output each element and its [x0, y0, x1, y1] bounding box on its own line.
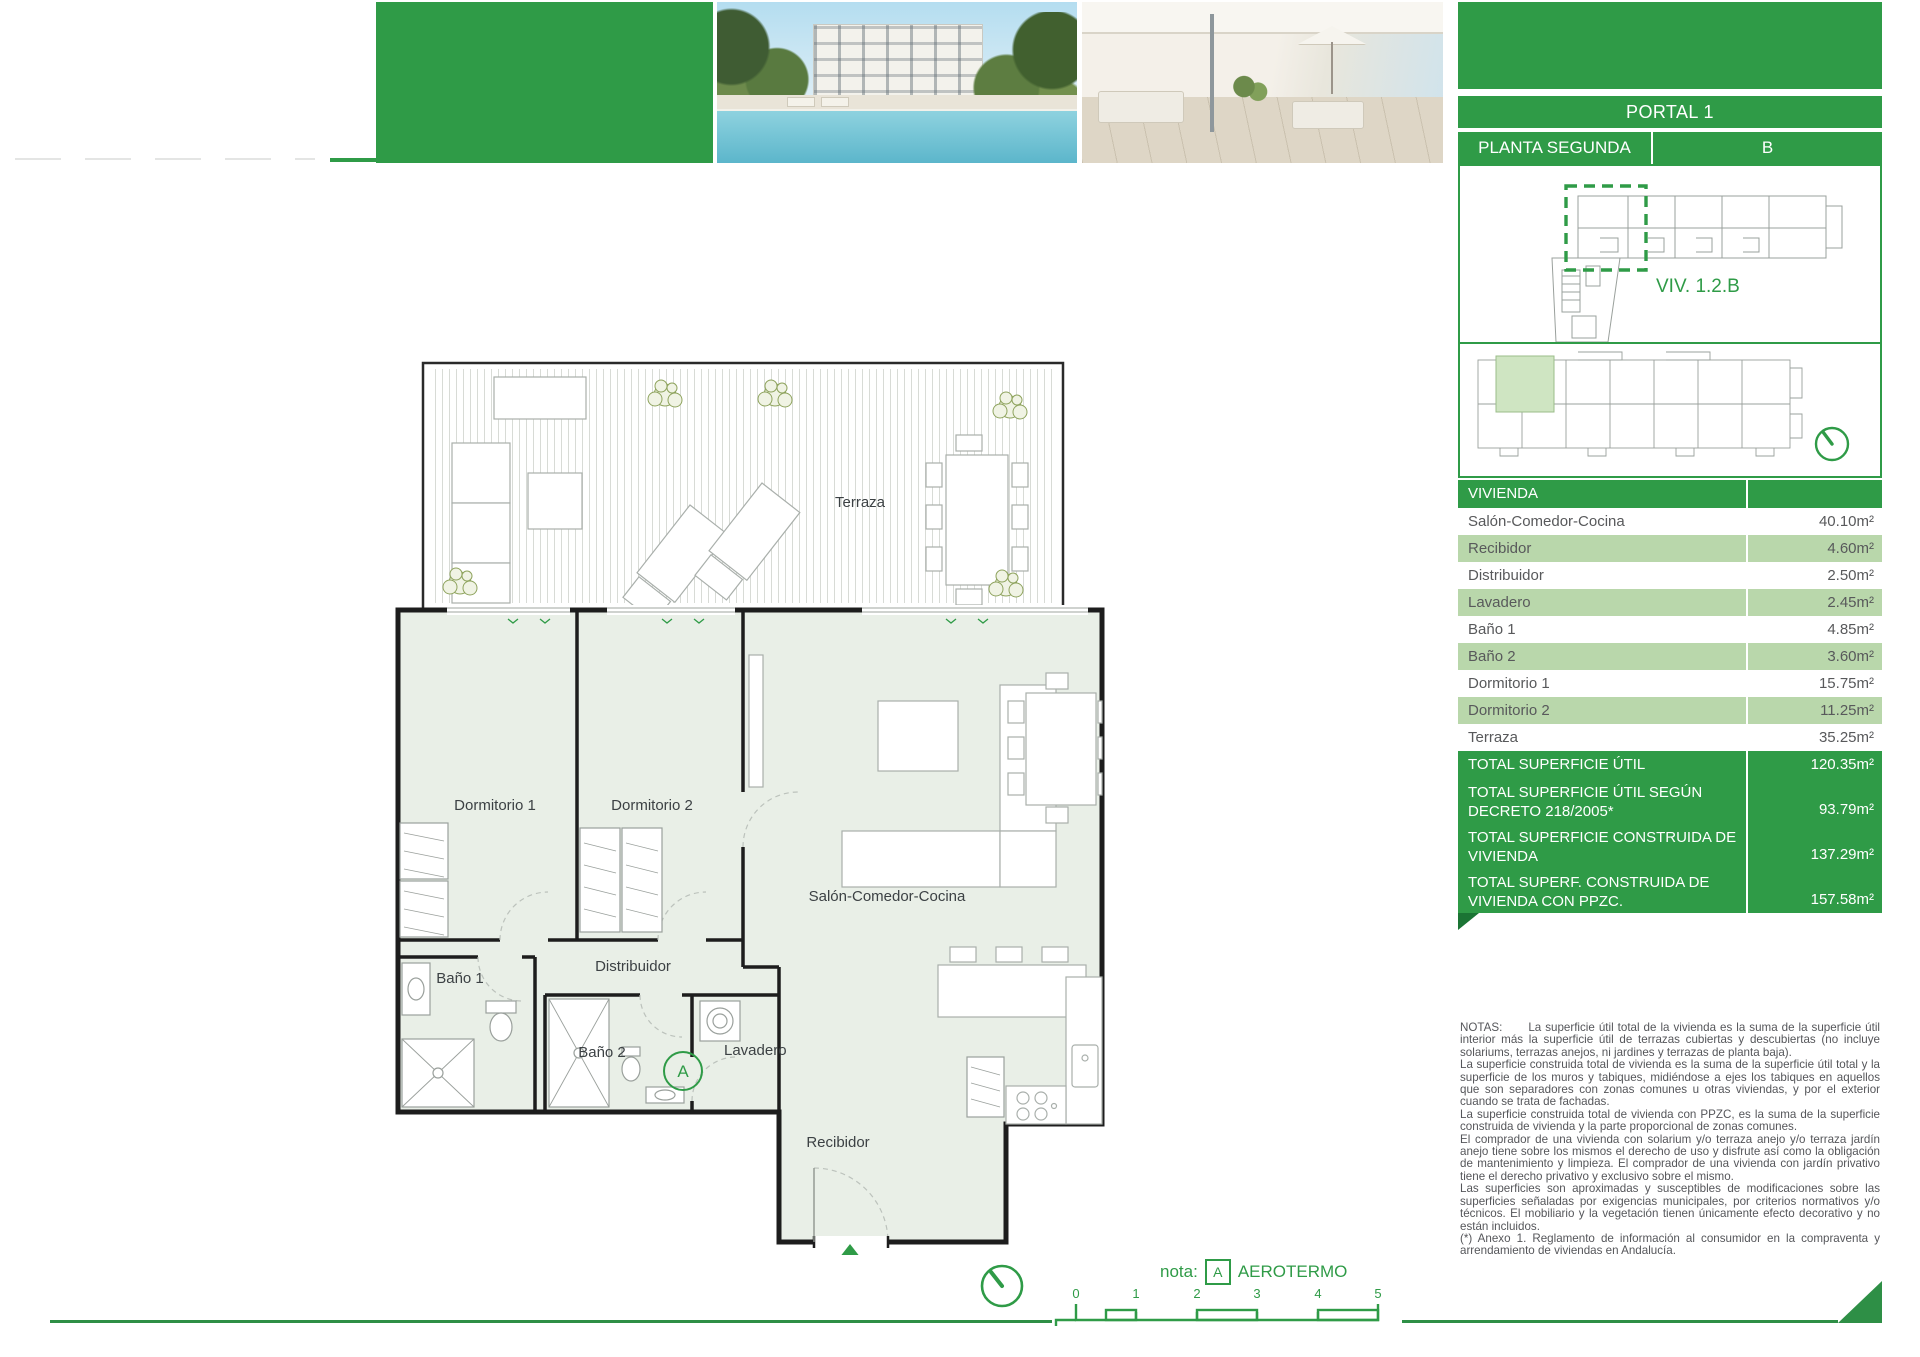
scale-bar: 0 1 2 3 4 5 [1048, 1282, 1388, 1328]
photo-lounger [821, 97, 849, 107]
photo-plant [1232, 73, 1272, 107]
photo-sofa [1098, 91, 1184, 123]
floor-strip-drawing [1460, 344, 1880, 476]
room-area: 3.60m² [1748, 643, 1882, 670]
pool-building-photo [717, 2, 1077, 163]
table-row: Recibidor4.60m² [1458, 535, 1882, 562]
floor-name: PLANTA SEGUNDA [1458, 132, 1651, 164]
surface-table: VIVIENDA Salón-Comedor-Cocina40.10m² Rec… [1458, 480, 1882, 913]
total-label: TOTAL SUPERF. CONSTRUIDA DE VIVIENDA CON… [1458, 868, 1746, 913]
room-name: Salón-Comedor-Cocina [1458, 508, 1746, 535]
svg-text:A: A [677, 1062, 689, 1081]
room-name: Distribuidor [1458, 562, 1746, 589]
photo-sofa [1292, 101, 1364, 129]
notes-block: NOTAS:La superficie útil total de la viv… [1460, 1022, 1880, 1258]
note-paragraph: (*) Anexo 1. Reglamento de información a… [1460, 1233, 1880, 1258]
room-area: 15.75m² [1748, 670, 1882, 697]
floor-plan-drawing: Terraza [390, 355, 1150, 1255]
room-area: 35.25m² [1748, 724, 1882, 751]
room-area: 4.60m² [1748, 535, 1882, 562]
table-row: Distribuidor2.50m² [1458, 562, 1882, 589]
highlighted-unit [1496, 356, 1554, 412]
plan-sheet: PORTAL 1 PLANTA SEGUNDA B [0, 0, 1920, 1357]
room-area: 40.10m² [1748, 508, 1882, 535]
total-label: TOTAL SUPERFICIE ÚTIL SEGÚN DECRETO 218/… [1458, 778, 1746, 823]
room-area: 11.25m² [1748, 697, 1882, 724]
aerotermo-note: nota: A AEROTERMO [1160, 1259, 1347, 1285]
note-paragraph: La superficie construida total de vivien… [1460, 1109, 1880, 1134]
table-row: Terraza35.25m² [1458, 724, 1882, 751]
table-row: Lavadero2.45m² [1458, 589, 1882, 616]
brand-color-block [376, 2, 713, 163]
floor-unit-row: PLANTA SEGUNDA B [1458, 132, 1882, 164]
scale-tick: 1 [1132, 1286, 1139, 1301]
table-header-row: VIVIENDA [1458, 480, 1882, 508]
aerotermo-box-icon: A [1205, 1259, 1231, 1285]
room-name: Baño 2 [1458, 643, 1746, 670]
total-value: 137.29m² [1748, 823, 1882, 868]
total-value: 93.79m² [1748, 778, 1882, 823]
table-row: Dormitorio 211.25m² [1458, 697, 1882, 724]
aerotermo-text: AEROTERMO [1238, 1262, 1348, 1282]
floor-strip-box [1458, 342, 1882, 478]
table-row: Salón-Comedor-Cocina40.10m² [1458, 508, 1882, 535]
portal-title: PORTAL 1 [1458, 96, 1882, 128]
total-row: TOTAL SUPERFICIE ÚTIL120.35m² [1458, 751, 1882, 778]
room-label-salon: Salón-Comedor-Cocina [809, 888, 966, 905]
faint-divider-line [15, 158, 315, 160]
terrace-area: Terraza [423, 363, 1063, 624]
room-label-terraza: Terraza [835, 494, 886, 511]
room-area: 4.85m² [1748, 616, 1882, 643]
room-name: Lavadero [1458, 589, 1746, 616]
nota-label: nota: [1160, 1262, 1198, 1282]
room-label-dormitorio2: Dormitorio 2 [611, 797, 693, 814]
green-accent-line [330, 158, 376, 162]
photo-lounger [787, 97, 815, 107]
total-row: TOTAL SUPERFICIE ÚTIL SEGÚN DECRETO 218/… [1458, 778, 1882, 823]
room-label-recibidor: Recibidor [806, 1134, 869, 1151]
room-area: 2.45m² [1748, 589, 1882, 616]
room-name: Recibidor [1458, 535, 1746, 562]
table-fold-corner [1458, 913, 1479, 930]
photo-pool [717, 109, 1077, 163]
footer-rule-left [50, 1320, 1052, 1323]
note-paragraph: La superficie construida total de vivien… [1460, 1059, 1880, 1109]
table-row: Dormitorio 115.75m² [1458, 670, 1882, 697]
scale-tick: 3 [1253, 1286, 1260, 1301]
total-label: TOTAL SUPERFICIE CONSTRUIDA DE VIVIENDA [1458, 823, 1746, 868]
unit-code-label: VIV. 1.2.B [1656, 276, 1740, 297]
footer-wedge-icon [1838, 1281, 1882, 1323]
scale-tick: 5 [1374, 1286, 1381, 1301]
table-title: VIVIENDA [1458, 480, 1746, 508]
room-label-bano2: Baño 2 [578, 1044, 626, 1061]
panel-header-block [1458, 2, 1882, 89]
scale-tick: 2 [1193, 1286, 1200, 1301]
photo-ceiling [1082, 2, 1443, 34]
north-indicator-icon [1816, 428, 1848, 460]
room-label-distribuidor: Distribuidor [595, 958, 671, 975]
room-name: Dormitorio 1 [1458, 670, 1746, 697]
room-name: Terraza [1458, 724, 1746, 751]
north-indicator-icon [978, 1262, 1026, 1310]
site-plan-drawing: VIV. 1.2.B [1460, 166, 1880, 344]
note-paragraph: La superficie útil total de la vivienda … [1460, 1021, 1880, 1059]
terrace-photo [1082, 2, 1443, 163]
note-paragraph: El comprador de una vivienda con solariu… [1460, 1134, 1880, 1184]
photo-umbrella-pole [1331, 42, 1333, 94]
total-row: TOTAL SUPERF. CONSTRUIDA DE VIVIENDA CON… [1458, 868, 1882, 913]
photo-glass-frame [1210, 14, 1214, 132]
notes-title: NOTAS: [1460, 1021, 1502, 1034]
room-label-lavadero: Lavadero [724, 1042, 787, 1059]
table-row: Baño 23.60m² [1458, 643, 1882, 670]
room-name: Baño 1 [1458, 616, 1746, 643]
note-paragraph: Las superficies son aproximadas y suscep… [1460, 1183, 1880, 1233]
footer-rule-right [1402, 1320, 1838, 1323]
unit-letter: B [1653, 132, 1882, 164]
scale-tick: 0 [1072, 1286, 1079, 1301]
total-label: TOTAL SUPERFICIE ÚTIL [1458, 751, 1746, 778]
laundry-fixtures [700, 1001, 740, 1041]
table-header-value-cell [1748, 480, 1882, 508]
room-area: 2.50m² [1748, 562, 1882, 589]
total-row: TOTAL SUPERFICIE CONSTRUIDA DE VIVIENDA1… [1458, 823, 1882, 868]
site-location-box: VIV. 1.2.B [1458, 164, 1882, 346]
total-value: 120.35m² [1748, 751, 1882, 778]
table-row: Baño 14.85m² [1458, 616, 1882, 643]
room-label-bano1: Baño 1 [436, 970, 484, 987]
scale-tick: 4 [1314, 1286, 1321, 1301]
room-name: Dormitorio 2 [1458, 697, 1746, 724]
total-value: 157.58m² [1748, 868, 1882, 913]
room-label-dormitorio1: Dormitorio 1 [454, 797, 536, 814]
